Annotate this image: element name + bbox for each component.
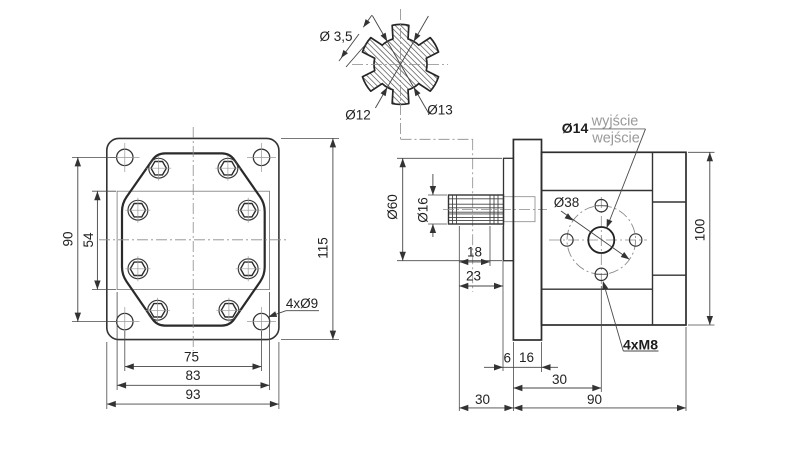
svg-text:Ø 3,5: Ø 3,5 (319, 29, 352, 44)
svg-text:30: 30 (552, 372, 567, 387)
svg-text:Ø14: Ø14 (562, 120, 589, 136)
svg-text:Ø60: Ø60 (385, 194, 400, 220)
svg-text:100: 100 (693, 219, 708, 242)
svg-text:18: 18 (467, 245, 482, 260)
svg-text:23: 23 (466, 269, 481, 284)
svg-text:Ø13: Ø13 (427, 103, 453, 118)
svg-text:83: 83 (185, 368, 200, 383)
svg-text:4xM8: 4xM8 (623, 337, 658, 353)
svg-text:54: 54 (81, 232, 96, 248)
svg-text:90: 90 (61, 231, 76, 246)
svg-text:Ø16: Ø16 (416, 197, 431, 223)
svg-text:16: 16 (519, 350, 534, 365)
svg-text:90: 90 (587, 392, 602, 407)
svg-text:6: 6 (504, 351, 512, 366)
svg-text:75: 75 (184, 350, 199, 365)
svg-text:93: 93 (185, 387, 200, 402)
svg-text:115: 115 (316, 237, 331, 259)
svg-text:4xØ9: 4xØ9 (286, 296, 318, 311)
svg-text:Ø12: Ø12 (345, 108, 371, 123)
svg-text:30: 30 (475, 392, 490, 407)
svg-text:wejście: wejście (591, 131, 640, 147)
svg-text:wyjście: wyjście (591, 114, 639, 130)
svg-text:Ø38: Ø38 (554, 195, 580, 210)
